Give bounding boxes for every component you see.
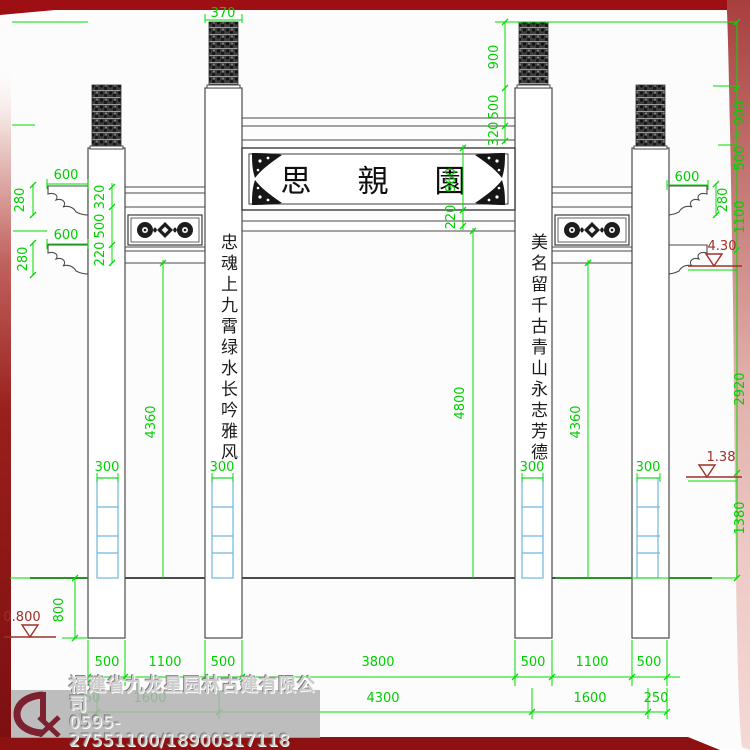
dimension-label: 4800 <box>453 386 468 419</box>
dimension-label: 280 <box>16 247 31 272</box>
dimension-label: 4360 <box>569 405 584 438</box>
dimension-label: 280 <box>13 188 28 213</box>
dimension-label: 250 <box>644 691 669 706</box>
elevation-marker-1-38: 1.38 <box>686 450 742 477</box>
company-watermark: 福建省九龙星园林古建有限公司 0595-27551100/18900317118 <box>11 690 320 738</box>
elevation-marker-0-800: 0.800 <box>3 610 56 637</box>
dimension-label: 500 <box>95 655 120 670</box>
column-1-finial <box>92 85 121 146</box>
column-3-finial <box>519 22 548 86</box>
dimension-label: 1100 <box>733 200 748 233</box>
company-phone: 0595-27551100/18900317118 <box>69 715 320 750</box>
dimension-label: 500 <box>733 146 748 171</box>
dimension-label: 960 <box>444 168 459 193</box>
dimension-label: 500 <box>521 655 546 670</box>
dimension-label: 4360 <box>144 405 159 438</box>
dimension-label: 800 <box>52 598 67 623</box>
dimension-label: 1600 <box>573 691 606 706</box>
corbel-left-lower <box>48 245 88 274</box>
plaque-title: 思親園 <box>281 164 512 200</box>
dimension-label: 3800 <box>361 655 394 670</box>
column-2-finial <box>209 22 238 86</box>
couplet-left-column: 忠魂上九霄绿水长吟雅风 <box>215 233 240 464</box>
dimension-label: 300 <box>636 460 661 475</box>
flower-panel-left <box>128 215 202 245</box>
dimension-label: 500 <box>637 655 662 670</box>
dimension-label: 1100 <box>148 655 181 670</box>
dimension-label: 1380 <box>733 501 748 534</box>
dimension-label: 500 <box>93 214 108 239</box>
dimension-label: 1100 <box>575 655 608 670</box>
dimension-label: 2920 <box>733 372 748 405</box>
dimension-label: 370 <box>211 6 236 21</box>
couplet-right-column: 美名留千古青山永志芳德 <box>525 233 550 464</box>
plaque: 思親園 <box>242 148 515 210</box>
dimension-label: 220 <box>444 205 459 230</box>
dimension-label: 320 <box>93 185 108 210</box>
dimension-label: 600 <box>54 168 79 183</box>
flower-panel-right <box>555 215 629 245</box>
cad-drawing-canvas: 思親園 370900500320600280600280320500220960… <box>0 0 750 750</box>
corbel-left-upper <box>48 186 88 215</box>
dimension-label: 320 <box>487 122 502 147</box>
company-name: 福建省九龙星园林古建有限公司 <box>69 677 320 715</box>
company-logo-icon <box>13 691 63 737</box>
dimension-label: 300 <box>95 460 120 475</box>
dimension-label: 500 <box>211 655 236 670</box>
svg-text:1.38: 1.38 <box>707 450 736 465</box>
dimension-label: 600 <box>675 170 700 185</box>
footings <box>97 478 660 578</box>
gate-elevation-drawing: 思親園 370900500320600280600280320500220960… <box>0 0 750 750</box>
dimension-label: 600 <box>54 228 79 243</box>
dimension-label: 500 <box>487 95 502 120</box>
corbel-right-upper <box>667 186 707 215</box>
dimension-label: 900 <box>487 45 502 70</box>
dimension-label: 280 <box>716 188 731 213</box>
dimension-label: 220 <box>93 242 108 267</box>
dimension-label: 900 <box>733 101 748 126</box>
dimension-label: 4300 <box>366 691 399 706</box>
svg-text:4.30: 4.30 <box>708 239 737 254</box>
svg-text:0.800: 0.800 <box>3 610 40 625</box>
column-4-finial <box>636 85 665 146</box>
